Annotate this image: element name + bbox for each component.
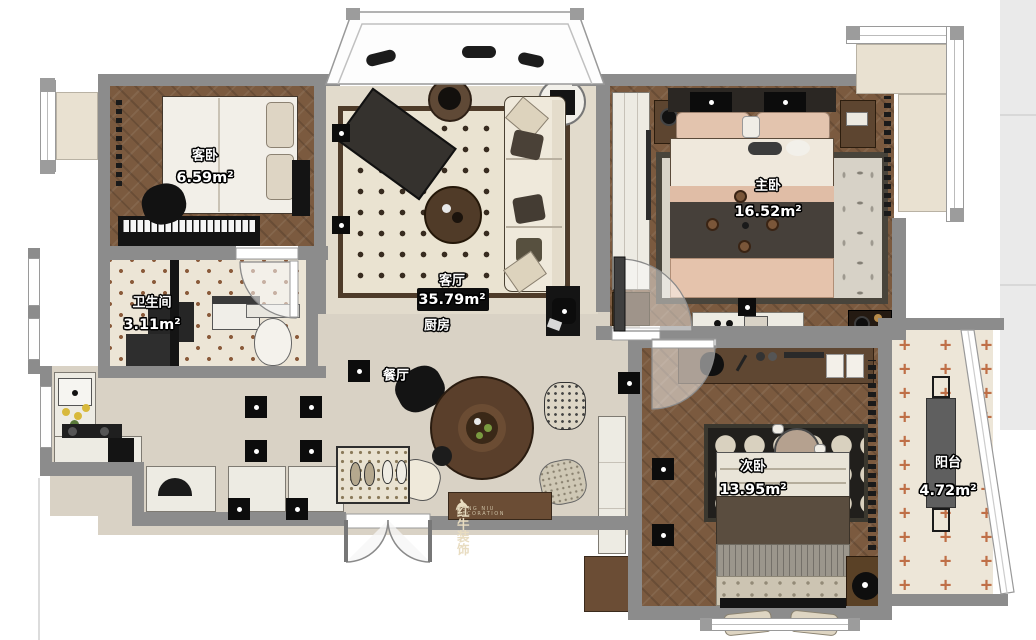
- second-bedroom-area: 13.95m²: [719, 483, 786, 498]
- wall: [98, 74, 328, 86]
- desk-item: [768, 352, 777, 361]
- curtain: [884, 96, 891, 216]
- second-bed-striped: [716, 544, 850, 578]
- bathroom-window: [28, 318, 40, 360]
- pillow-small: [742, 116, 760, 138]
- guest-bedroom-label: 客卧: [192, 150, 218, 163]
- wall: [98, 366, 326, 378]
- master-cabinet: [612, 292, 650, 326]
- wall: [596, 326, 612, 340]
- slipper: [350, 462, 361, 486]
- nightstand-tray: [846, 112, 868, 126]
- master-wardrobe: [612, 92, 650, 290]
- pom-decor: [706, 218, 719, 231]
- oven: [108, 438, 134, 462]
- dish: [474, 418, 481, 425]
- wall: [596, 74, 856, 86]
- pillow: [266, 154, 294, 200]
- wall: [878, 594, 1008, 606]
- rack-frame: [932, 508, 950, 532]
- ceiling-light: [652, 524, 674, 546]
- wall: [40, 462, 144, 476]
- ceiling-light: [618, 372, 640, 394]
- dining-chair-patterned: [544, 382, 586, 430]
- curtain: [868, 360, 876, 550]
- wall: [878, 330, 892, 620]
- sofa-backrest: [552, 100, 564, 288]
- wall: [98, 246, 236, 260]
- slipper: [396, 460, 407, 484]
- vegetable: [62, 408, 70, 416]
- washing-machine: [126, 334, 170, 366]
- outside-line: [1000, 114, 1036, 116]
- pom-decor: [738, 240, 751, 253]
- piano-keys: [122, 220, 256, 232]
- slipper: [364, 462, 375, 486]
- sheet-fold: [720, 468, 846, 470]
- wardrobe-handle: [646, 130, 651, 220]
- window-cap: [950, 26, 964, 40]
- outside-line: [1000, 284, 1036, 286]
- sofa-seam: [506, 226, 562, 228]
- entry-shoe-cabinet: 红牛装饰 HONG NIU DECORATION: [448, 492, 552, 520]
- sofa-pillow: [512, 194, 546, 225]
- curtain: [116, 96, 122, 186]
- dish: [484, 424, 492, 432]
- living-room-label: 客厅: [439, 275, 465, 288]
- lazy-susan: [466, 412, 498, 444]
- outside-wall-outline: [38, 478, 40, 640]
- guest-bed-seam: [218, 98, 220, 212]
- master-window-seat: [856, 44, 948, 94]
- wall: [716, 338, 892, 348]
- kitchen-label: 厨房: [424, 320, 450, 333]
- guest-bedroom-area: 6.59m²: [176, 171, 233, 186]
- tv-soundbar: [414, 68, 500, 79]
- corridor-closet: [598, 416, 626, 554]
- pillow: [266, 102, 294, 148]
- toilet: [254, 318, 292, 366]
- outside-right-area: [1000, 0, 1036, 430]
- window-cap: [700, 618, 712, 631]
- wall: [892, 218, 906, 328]
- master-window-seat: [898, 94, 948, 212]
- corridor-cabinet: [584, 556, 632, 612]
- master-bedroom-label: 主卧: [755, 180, 781, 193]
- window-cap: [846, 26, 860, 40]
- wall: [314, 74, 340, 86]
- guest-window-seat: [56, 92, 98, 160]
- dish: [476, 432, 483, 439]
- watermark-subtitle: HONG NIU DECORATION: [457, 507, 505, 517]
- bathroom-window: [28, 258, 40, 306]
- window-cap: [848, 618, 860, 631]
- master-bed-foot: [670, 258, 834, 298]
- pom-center: [742, 222, 749, 229]
- desk-ruler: [784, 352, 824, 358]
- living-room-area: 35.79m²: [418, 293, 485, 308]
- window-plant: [517, 51, 545, 68]
- wall: [878, 318, 1004, 330]
- kitchen-window: [40, 386, 52, 448]
- window-plant: [365, 49, 397, 68]
- master-bedroom-area: 16.52m²: [734, 205, 801, 220]
- window-cap: [40, 160, 55, 174]
- ceiling-light: [300, 440, 322, 462]
- desk-book: [826, 354, 844, 378]
- teapot: [432, 446, 452, 466]
- wall: [306, 252, 318, 378]
- desk-plant: [700, 352, 724, 376]
- plumbing-pipe: [170, 258, 179, 366]
- ceiling-light: [300, 396, 322, 418]
- wall: [98, 252, 110, 374]
- floor-plan: + + + + + + + + + + + + + + + + + + + + …: [0, 0, 1036, 640]
- desk-item: [756, 352, 765, 361]
- toilet-tank: [246, 304, 300, 318]
- pendant-light: [690, 92, 732, 112]
- wall: [98, 74, 110, 262]
- bed-decor: [748, 142, 782, 155]
- ceiling-light: [652, 458, 674, 480]
- slipper: [382, 460, 393, 484]
- window-plant: [462, 46, 496, 58]
- table-chip: [772, 424, 784, 434]
- vegetable: [82, 404, 90, 412]
- bathroom-label: 卫生间: [132, 297, 171, 310]
- rack-frame: [932, 376, 950, 398]
- balcony-area: 4.72m²: [919, 484, 976, 499]
- guest-wardrobe: [292, 160, 310, 216]
- ceiling-light: [245, 396, 267, 418]
- dining-room-label: 餐厅: [383, 370, 409, 383]
- pom-decor: [766, 218, 779, 231]
- table-decor: [452, 212, 463, 223]
- ceiling-light: [228, 498, 250, 520]
- bed-bench: [720, 598, 846, 608]
- window-cap: [40, 78, 55, 92]
- plant-pot: [438, 87, 461, 110]
- ceiling-light: [245, 440, 267, 462]
- bathroom-area: 3.11m²: [123, 318, 180, 333]
- window-cap: [346, 8, 360, 20]
- vinyl-center: [862, 582, 868, 588]
- pendant-light: [764, 92, 806, 112]
- bed-decor: [786, 140, 810, 156]
- table-decor: [442, 204, 451, 213]
- bathroom-cabinet-top: [212, 296, 260, 304]
- master-bay-window-right: [946, 26, 964, 222]
- guest-window: [40, 80, 56, 172]
- window-cap: [570, 8, 584, 20]
- ceiling-light: [348, 360, 370, 382]
- desk-book: [846, 354, 864, 378]
- ceiling-light: [286, 498, 308, 520]
- wall: [642, 338, 652, 348]
- vegetable: [74, 412, 82, 420]
- balcony-label: 阳台: [935, 457, 961, 470]
- wall: [596, 74, 610, 312]
- second-blanket: [716, 496, 850, 546]
- ceiling-light: [738, 298, 756, 316]
- faucet: [72, 390, 78, 396]
- pom-decor: [734, 190, 747, 203]
- burner: [68, 427, 77, 436]
- burner: [100, 427, 109, 436]
- second-bedroom-window: [700, 618, 860, 631]
- window-cap: [950, 208, 964, 222]
- second-bedroom-label: 次卧: [740, 461, 766, 474]
- ceiling-light: [332, 216, 350, 234]
- ceiling-light: [332, 124, 350, 142]
